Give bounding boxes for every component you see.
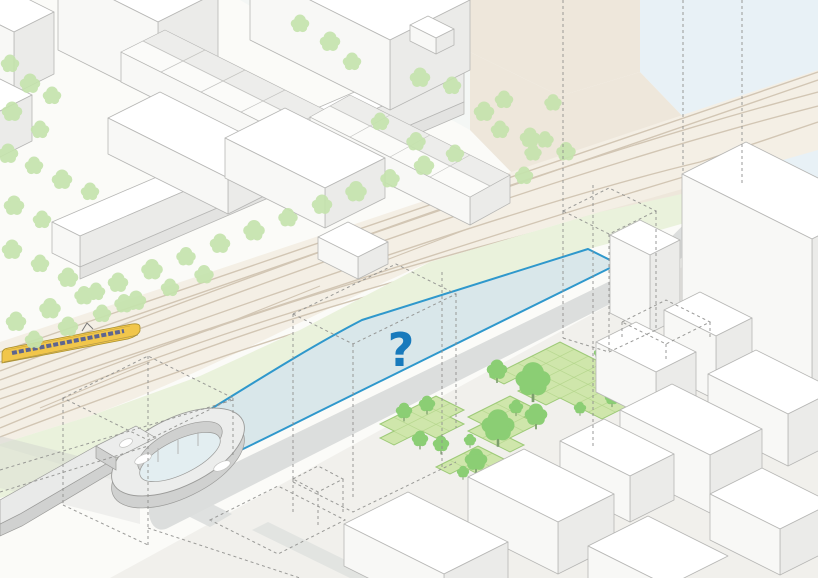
site-diagram: ? — [0, 0, 818, 578]
site-question-mark: ? — [388, 323, 415, 377]
site-diagram-canvas: ? — [0, 0, 818, 578]
